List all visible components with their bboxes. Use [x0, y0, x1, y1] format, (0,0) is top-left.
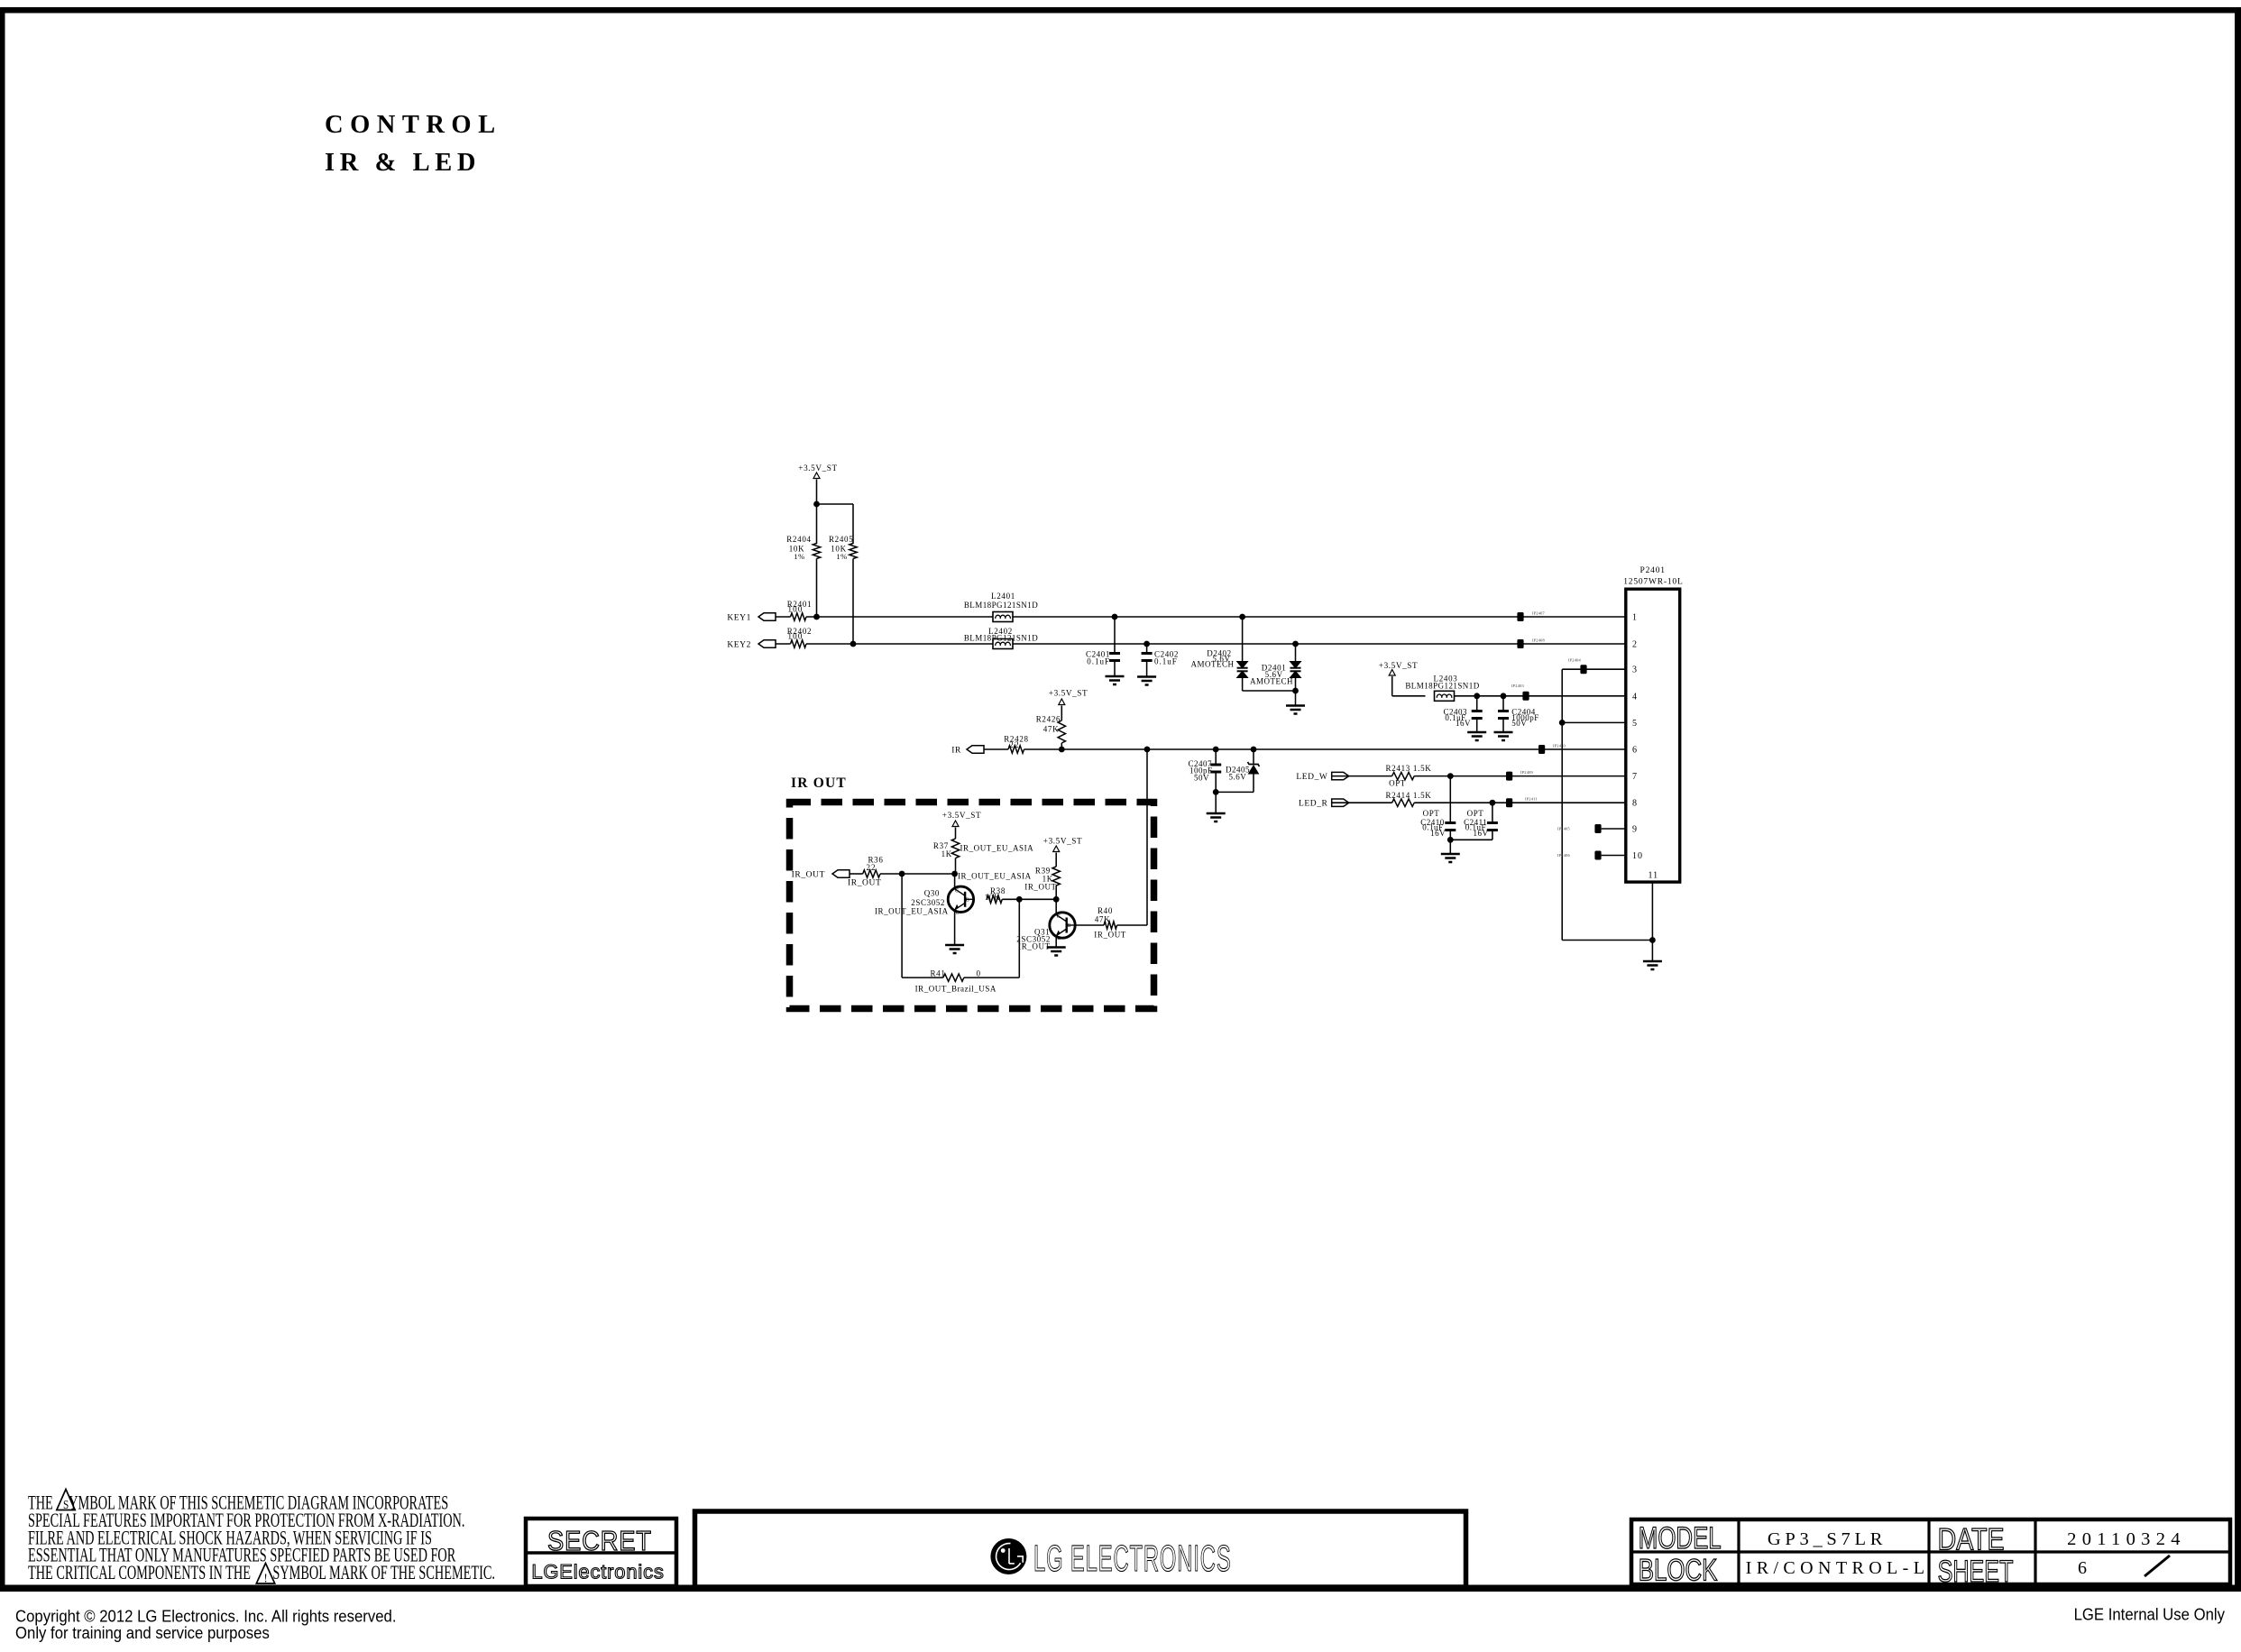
svg-text:IP2408: IP2408	[1532, 638, 1545, 643]
svg-text:+3.5V_ST: +3.5V_ST	[798, 463, 837, 473]
svg-text:+3.5V_ST: +3.5V_ST	[942, 811, 981, 820]
svg-text:0.1uF: 0.1uF	[1154, 657, 1178, 666]
svg-text:B: B	[1068, 923, 1071, 929]
svg-text:R2426: R2426	[1036, 715, 1061, 724]
svg-text:50V: 50V	[1511, 719, 1527, 728]
svg-text:KEY1: KEY1	[727, 613, 751, 622]
svg-text:IP2405: IP2405	[1557, 827, 1570, 831]
svg-text:IP2404: IP2404	[1568, 658, 1581, 663]
svg-text:SHEET: SHEET	[1938, 1555, 2014, 1589]
svg-text:3: 3	[1632, 665, 1638, 675]
svg-text:P2401: P2401	[1640, 566, 1666, 575]
svg-text:R2414 1.5K: R2414 1.5K	[1385, 791, 1431, 800]
svg-text:47K: 47K	[1043, 725, 1060, 734]
svg-text:IP2403: IP2403	[1511, 684, 1524, 688]
svg-text:BLM18PG121SN1D: BLM18PG121SN1D	[964, 601, 1038, 610]
svg-text:IR_OUT: IR_OUT	[848, 878, 881, 887]
svg-text:R2404: R2404	[786, 535, 812, 544]
svg-text:IR_OUT_EU_ASIA: IR_OUT_EU_ASIA	[960, 844, 1034, 853]
svg-text:BLM18PG121SN1D: BLM18PG121SN1D	[1405, 682, 1479, 691]
svg-text:IP2409: IP2409	[1520, 770, 1533, 775]
svg-text:IR_OUT_EU_ASIA: IR_OUT_EU_ASIA	[958, 871, 1032, 880]
svg-text:6: 6	[1632, 746, 1638, 756]
svg-text:!: !	[264, 1571, 268, 1585]
svg-text:DATE: DATE	[1938, 1522, 2005, 1556]
svg-text:0.1uF: 0.1uF	[1087, 657, 1110, 666]
svg-text:8: 8	[1632, 799, 1638, 809]
svg-text:16V: 16V	[1430, 829, 1446, 838]
svg-text:+3.5V_ST: +3.5V_ST	[1043, 837, 1082, 846]
svg-text:+3.5V_ST: +3.5V_ST	[1379, 661, 1418, 670]
svg-text:16V: 16V	[1474, 829, 1489, 838]
svg-text:5.6V: 5.6V	[1229, 773, 1247, 782]
svg-text:IP2406: IP2406	[1557, 853, 1570, 858]
svg-text:E: E	[956, 910, 960, 915]
svg-text:OPT: OPT	[1467, 809, 1484, 818]
svg-text:1%: 1%	[836, 552, 847, 561]
svg-text:LED_R: LED_R	[1299, 800, 1328, 809]
svg-text:2: 2	[1632, 640, 1638, 650]
svg-text:1K: 1K	[941, 849, 952, 858]
svg-text:9: 9	[1632, 825, 1638, 835]
svg-text:CONTROL: CONTROL	[325, 111, 502, 139]
svg-text:LGElectronics: LGElectronics	[531, 1561, 664, 1583]
svg-text:IP2410: IP2410	[1553, 744, 1566, 748]
svg-text:LGE Internal Use Only: LGE Internal Use Only	[2074, 1605, 2226, 1624]
svg-text:AMOTECH: AMOTECH	[1250, 676, 1293, 685]
svg-text:22: 22	[1009, 740, 1019, 749]
svg-text:IR OUT: IR OUT	[791, 776, 847, 791]
svg-text:OPT: OPT	[1389, 779, 1406, 788]
svg-text:LED_W: LED_W	[1296, 773, 1327, 782]
svg-text:AMOTECH: AMOTECH	[1191, 660, 1235, 669]
svg-text:10K: 10K	[985, 893, 1001, 902]
svg-text:R2413 1.5K: R2413 1.5K	[1385, 764, 1431, 773]
svg-text:B: B	[966, 897, 969, 903]
svg-text:L2401: L2401	[991, 592, 1015, 601]
svg-text:Only for training and service: Only for training and service purposes	[15, 1623, 270, 1642]
svg-text:IR_OUT: IR_OUT	[1024, 883, 1056, 892]
svg-text:IR_OUT: IR_OUT	[1018, 942, 1051, 951]
svg-text:OPT: OPT	[1423, 809, 1440, 818]
svg-text:IR_OUT_EU_ASIA: IR_OUT_EU_ASIA	[875, 907, 949, 916]
svg-text:C: C	[1057, 914, 1061, 920]
svg-text:R41: R41	[930, 969, 945, 978]
svg-text:IR/CONTROL-L: IR/CONTROL-L	[1746, 1558, 1930, 1578]
svg-text:16V: 16V	[1456, 719, 1471, 728]
svg-text:0: 0	[976, 969, 980, 978]
svg-text:THE CRITICAL COMPONENTS IN THE: THE CRITICAL COMPONENTS IN THE	[28, 1562, 251, 1584]
svg-text:IR_OUT: IR_OUT	[792, 870, 825, 879]
svg-text:1%: 1%	[794, 552, 804, 561]
svg-text:2SC3052: 2SC3052	[911, 898, 945, 907]
svg-text:+3.5V_ST: +3.5V_ST	[1049, 689, 1088, 698]
svg-text:MODEL: MODEL	[1639, 1522, 1722, 1556]
svg-text:SECRET: SECRET	[547, 1526, 652, 1556]
svg-text:GP3_S7LR: GP3_S7LR	[1768, 1529, 1887, 1549]
svg-text:47K: 47K	[1095, 915, 1111, 924]
svg-text:7: 7	[1632, 772, 1638, 782]
svg-text:IR & LED: IR & LED	[325, 149, 481, 177]
svg-text:C: C	[955, 888, 959, 894]
svg-text:KEY2: KEY2	[727, 640, 751, 649]
svg-text:4: 4	[1632, 692, 1638, 702]
svg-text:IR_OUT: IR_OUT	[1094, 931, 1126, 940]
svg-text:10: 10	[1632, 851, 1643, 861]
svg-text:IP2411: IP2411	[1525, 797, 1538, 802]
svg-text:12507WR-10L: 12507WR-10L	[1623, 578, 1683, 587]
svg-text:100: 100	[787, 605, 803, 614]
svg-text:5: 5	[1632, 719, 1638, 729]
svg-text:IP2407: IP2407	[1532, 611, 1545, 616]
svg-text:S: S	[63, 1498, 69, 1511]
svg-text:6: 6	[2078, 1558, 2087, 1578]
svg-text:20110324: 20110324	[2067, 1529, 2186, 1549]
svg-text:BLM18PG121SN1D: BLM18PG121SN1D	[964, 633, 1038, 642]
svg-text:22: 22	[867, 863, 877, 872]
svg-text:50V: 50V	[1194, 773, 1209, 782]
svg-text:IR_OUT_Brazil_USA: IR_OUT_Brazil_USA	[915, 985, 997, 994]
svg-text:100: 100	[787, 632, 803, 641]
svg-text:SYMBOL MARK OF THE SCHEMETIC.: SYMBOL MARK OF THE SCHEMETIC.	[272, 1562, 495, 1584]
svg-text:11: 11	[1649, 871, 1659, 881]
svg-text:Q30: Q30	[924, 889, 940, 898]
svg-text:1: 1	[1632, 613, 1638, 623]
svg-text:BLOCK: BLOCK	[1639, 1554, 1718, 1587]
svg-text:E: E	[1057, 936, 1061, 941]
svg-text:LG ELECTRONICS: LG ELECTRONICS	[1033, 1539, 1232, 1580]
svg-text:IR: IR	[951, 746, 961, 755]
svg-text:R2405: R2405	[829, 535, 854, 544]
